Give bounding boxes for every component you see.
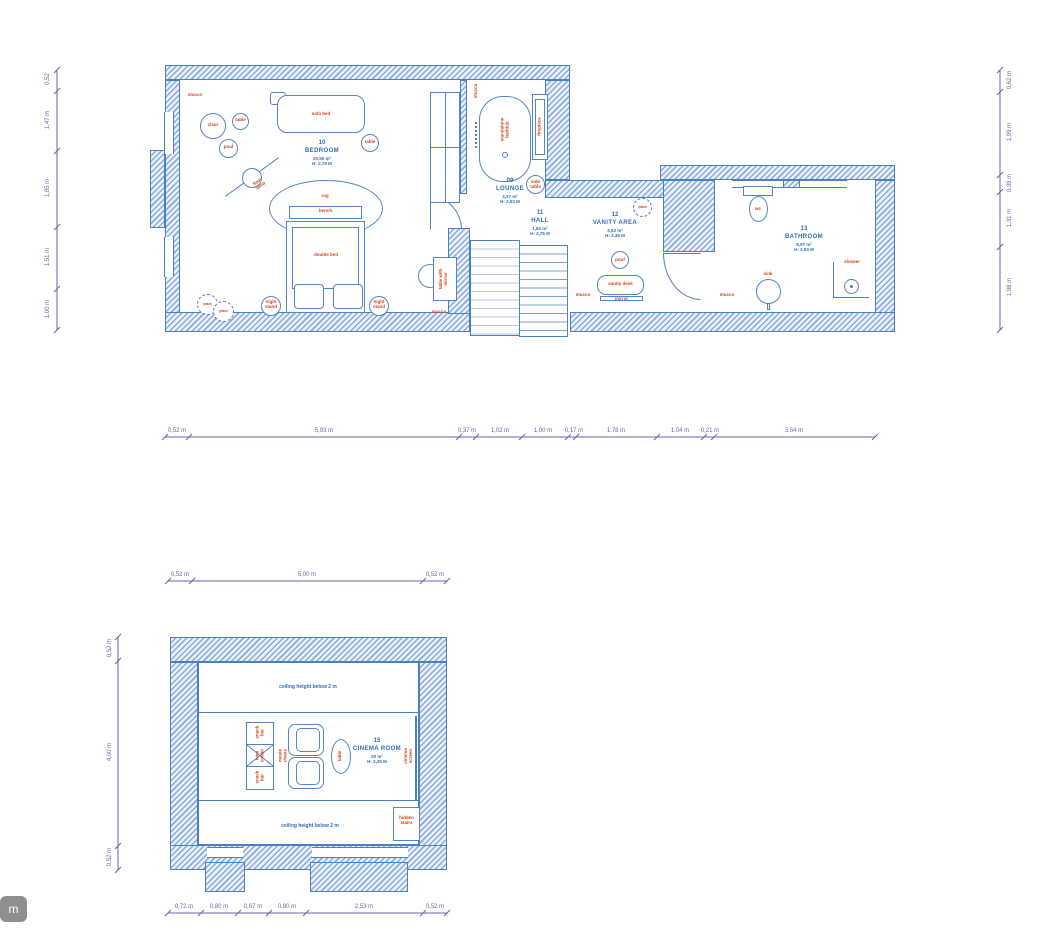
dim-label: 1,47 m — [45, 100, 51, 140]
bathtub-drain — [502, 152, 508, 158]
wc-tank — [743, 186, 773, 196]
dim-label: 0,52 m — [107, 837, 113, 877]
ceiling-height-note: ceiling height below 2 m — [238, 684, 378, 690]
stairs-flight — [519, 245, 568, 337]
wall — [310, 862, 408, 892]
sink-tap — [767, 303, 770, 310]
door-arc — [663, 253, 701, 300]
room-label-bathroom: 13 BATHROOM 8,07 m² H: 2,53 M — [768, 226, 840, 253]
stucco-label: stucco — [714, 292, 740, 297]
dim-label: 1,98 m — [1007, 267, 1013, 307]
mirror-label: mirror — [600, 296, 643, 301]
room-number: 12 — [582, 212, 648, 220]
shower-wall — [833, 262, 834, 298]
dim-label: 0,52 — [45, 59, 51, 99]
dim-label: 5,93 m — [304, 428, 344, 434]
ceiling-height-note: ceiling height below 2 m — [240, 823, 380, 829]
pillow — [294, 284, 324, 309]
dim-label: 2,53 m — [344, 904, 384, 910]
stairs-flight — [470, 240, 520, 336]
stucco-label: stucco — [426, 309, 452, 314]
sink-label: sink — [755, 271, 781, 276]
room-name: BATHROOM — [768, 234, 840, 242]
pouf-label: pouf — [611, 257, 629, 262]
dim-label: 0,52 m — [107, 628, 113, 668]
window — [164, 237, 174, 277]
window — [312, 847, 408, 858]
dim-label: 0,17 m — [554, 428, 594, 434]
mini-cooler-label: mini cooler — [255, 749, 266, 763]
shower-label: shower — [838, 259, 866, 264]
room-number: 13 — [768, 226, 840, 234]
room-number: 10 — [287, 140, 357, 148]
dim-label: 0,72 m — [164, 904, 204, 910]
room-label-lounge: 09 LOUNGE 4,27 m² H: 2,53 M — [480, 178, 540, 205]
stucco-label: stucco — [182, 92, 208, 97]
room-name: VANITY AREA — [582, 220, 648, 228]
table-with-mirror-label: table with mirror — [438, 268, 454, 290]
wall — [165, 312, 470, 332]
fireplace-label: fireplace — [537, 112, 546, 142]
room-label-cinema: 15 CINEMA ROOM 20 m² H: 2,35 M — [344, 738, 410, 765]
pillow — [333, 284, 363, 309]
room-height: H: 2,53 M — [480, 199, 540, 205]
dim-label: 4,00 m — [107, 732, 113, 772]
dim-label: 1,78 m — [596, 428, 636, 434]
room-height: H: 2,35 M — [344, 759, 410, 765]
stucco-label: stucco — [473, 78, 481, 104]
ceiling-zone-line — [198, 800, 419, 801]
dim-label: 0,52 m — [415, 904, 455, 910]
sofa-bed-label: sofa bed — [298, 111, 344, 116]
rug-label: rug — [313, 193, 337, 198]
wall — [170, 637, 447, 662]
dim-label: 1,31 m — [1007, 198, 1013, 238]
room-number: 11 — [510, 210, 570, 218]
dim-label: 0,52 m — [415, 572, 455, 578]
room-label-bedroom: 10 BEDROOM 20,50 m² H: 2,75 M — [287, 140, 357, 167]
room-height: H: 2,75 M — [287, 161, 357, 167]
dim-label: 0,52 m — [160, 572, 200, 578]
hidden-stairs-label: hidden stairs — [394, 815, 419, 825]
room-height: H: 2,53 M — [768, 247, 840, 253]
snack-bar-label: snack bar — [255, 772, 266, 784]
dim-label: 0,62 m — [1007, 60, 1013, 100]
wall — [419, 662, 447, 870]
ceiling-zone-line — [198, 712, 419, 713]
movie-chairs-label: movie chairs — [278, 748, 291, 764]
dim-label: 1,51 m — [45, 237, 51, 277]
dim-label: 1,85 m — [45, 168, 51, 208]
wall — [460, 80, 467, 194]
movie-chair-seat — [296, 761, 320, 785]
wall — [205, 862, 245, 892]
wall — [570, 312, 895, 332]
wall — [875, 180, 895, 332]
wall — [165, 65, 570, 80]
mattress — [292, 227, 359, 289]
window — [800, 180, 847, 188]
chair-label: chair — [200, 122, 226, 127]
floorplan-canvas: stucco stucco stucco stucco stucco chair… — [0, 0, 1045, 934]
room-label-hall: 11 HALL 1,84 m² H: 2,75 M — [510, 210, 570, 237]
measure-button[interactable]: m — [0, 896, 27, 922]
shower-wall — [833, 297, 869, 298]
dim-label: 1,02 m — [480, 428, 520, 434]
stucco-label: stucco — [570, 292, 596, 297]
night-stand-label: night stand — [261, 299, 281, 309]
wall — [660, 165, 895, 180]
dim-label: 5,00 m — [287, 572, 327, 578]
wall — [150, 150, 165, 228]
room-name: BEDROOM — [287, 148, 357, 156]
wc-label: wc — [748, 206, 768, 211]
window — [164, 112, 174, 154]
snack-bar-label: snack bar — [255, 727, 266, 739]
bathtub-label: standalone bathtub — [500, 115, 511, 145]
radiator — [475, 122, 478, 148]
dim-label: 3,54 m — [774, 428, 814, 434]
vanity-desk-label: vanity desk — [597, 281, 644, 286]
bench-label: bench — [289, 208, 362, 213]
table-label: table — [360, 139, 380, 144]
plant-label: plant — [215, 309, 232, 313]
night-stand-label: night stand — [369, 299, 389, 309]
room-name: LOUNGE — [480, 186, 540, 194]
room-number: 15 — [344, 738, 410, 746]
room-height: H: 2,75 M — [510, 231, 570, 237]
wall — [545, 180, 670, 198]
table-label: table — [231, 117, 250, 122]
shower-head-dot — [850, 285, 853, 288]
room-label-vanity: 12 VANITY AREA 3,63 m² H: 2,35 M — [582, 212, 648, 239]
wardrobe — [430, 92, 460, 203]
wall — [783, 180, 800, 188]
dim-label: 0,52 m — [157, 428, 197, 434]
double-bed-label: double bed — [296, 252, 356, 257]
dim-label: 1,00 m — [45, 289, 51, 329]
dim-label: 1,99 m — [1007, 112, 1013, 152]
dim-label: 0,21 m — [690, 428, 730, 434]
wall — [545, 80, 570, 180]
wall — [170, 662, 198, 870]
movie-chair-seat — [296, 728, 320, 752]
room-number: 09 — [480, 178, 540, 186]
window — [207, 847, 243, 858]
pouf-label: pouf — [219, 144, 238, 149]
dim-label: 0,39 m — [1007, 163, 1013, 203]
room-name: CINEMA ROOM — [344, 746, 410, 754]
sink — [756, 279, 781, 304]
dim-label: 0,80 m — [267, 904, 307, 910]
plant-label: plant — [635, 205, 650, 209]
room-height: H: 2,35 M — [582, 233, 648, 239]
room-name: HALL — [510, 218, 570, 226]
wall — [663, 180, 715, 252]
plant-label: plant — [199, 302, 216, 306]
